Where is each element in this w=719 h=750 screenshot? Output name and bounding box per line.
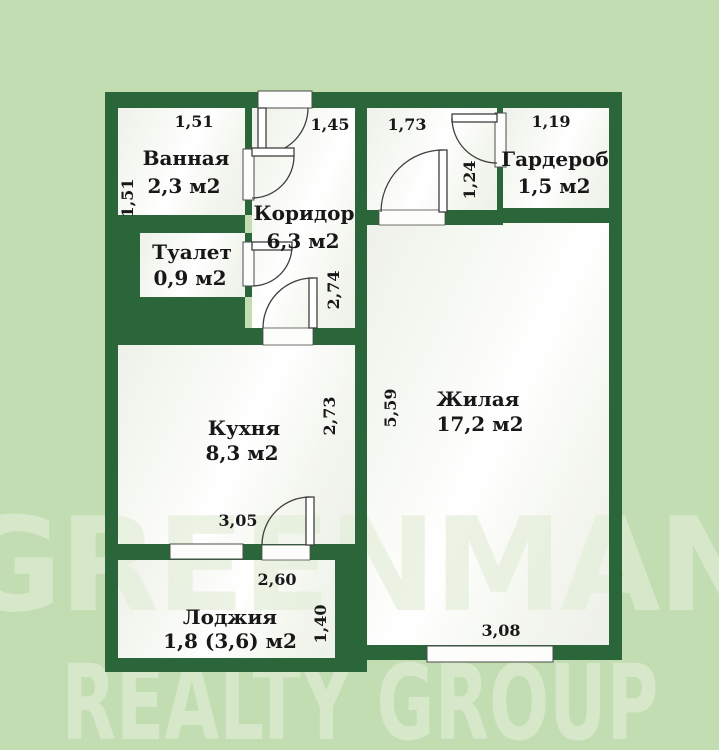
dim-kitchen-right: 2,73 [322,397,338,436]
room-label-living: Жилая [437,389,520,409]
dim-living-left: 5,59 [383,389,399,428]
door-arc [452,118,497,163]
door-leaf [252,148,294,156]
room-label-toilet: Туалет [152,242,232,262]
area-label-living: 17,2 м2 [437,414,524,434]
room-label-loggia: Лоджия [183,607,277,627]
dim-kitchen-bottom: 3,05 [219,513,258,529]
dim-hall-right: 1,24 [462,161,478,200]
door-arc [262,108,308,154]
dim-loggia-top: 2,60 [258,572,297,588]
door-leaf [306,497,314,545]
floor-plan: GREENMAN REALTY GROUP [0,0,719,750]
dim-living-bottom: 3,08 [482,623,521,639]
door-arc [263,278,313,328]
dim-wardrobe-top: 1,19 [532,114,571,130]
door-leaf [439,150,447,212]
dim-hall-top: 1,73 [388,117,427,133]
door-arc [381,150,443,212]
window-living [427,646,553,662]
door-threshold [263,328,313,345]
area-label-bathroom: 2,3 м2 [147,176,220,196]
dim-bathroom-left: 1,51 [120,179,136,218]
door-arc [262,497,310,545]
door-threshold [262,545,310,560]
room-label-kitchen: Кухня [208,418,280,438]
door-arc [252,156,294,198]
door-threshold [379,210,445,225]
door-leaf [258,108,266,154]
door-threshold [258,91,312,108]
area-label-loggia: 1,8 (3,6) м2 [163,631,297,651]
room-label-wardrobe: Гардероб [501,149,608,169]
area-label-corridor: 6,3 м2 [266,231,339,251]
area-label-wardrobe: 1,5 м2 [517,176,590,196]
window-kitchen [170,544,243,559]
door-leaf [309,278,317,328]
door-leaf [452,114,497,122]
doors-windows-overlay [0,0,719,750]
dim-corridor-height: 2,74 [326,271,342,310]
area-label-kitchen: 8,3 м2 [205,443,278,463]
dim-bathroom-top: 1,51 [175,114,214,130]
dim-loggia-right: 1,40 [313,605,329,644]
area-label-toilet: 0,9 м2 [153,268,226,288]
room-label-bathroom: Ванная [143,148,230,168]
room-label-corridor: Коридор [253,203,354,223]
dim-corridor-door: 1,45 [311,117,350,133]
